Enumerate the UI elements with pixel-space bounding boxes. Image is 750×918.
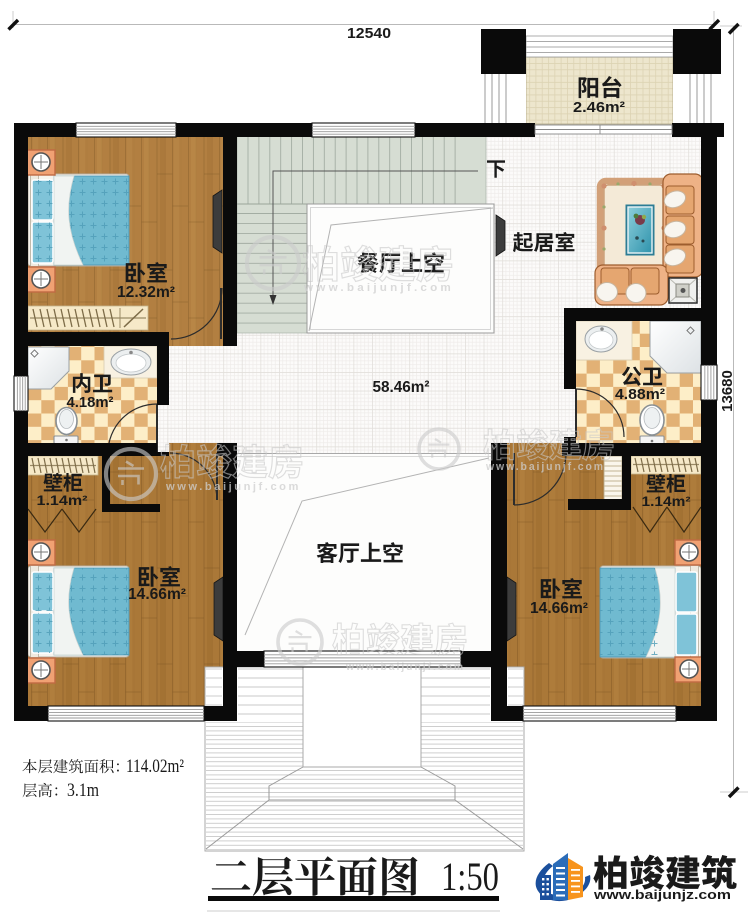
svg-text:3.1m: 3.1m (67, 780, 99, 801)
svg-text:www.baijunjf.com: www.baijunjf.com (485, 461, 605, 473)
svg-text:1.14m²: 1.14m² (37, 492, 88, 508)
svg-text:14.66m²: 14.66m² (530, 600, 588, 617)
svg-text:114.02m²: 114.02m² (126, 756, 184, 777)
svg-text:www.baijunjf.com: www.baijunjf.com (165, 481, 301, 493)
svg-text:2.46m²: 2.46m² (573, 99, 625, 116)
svg-text:www.baijunjf.com: www.baijunjf.com (303, 282, 454, 294)
svg-text:www.baijunjf.com: www.baijunjf.com (345, 661, 465, 673)
svg-text:13680: 13680 (719, 370, 736, 412)
svg-text:1.14m²: 1.14m² (642, 493, 691, 509)
svg-text:14.66m²: 14.66m² (128, 586, 186, 603)
svg-text:1:50: 1:50 (441, 854, 499, 899)
svg-text:4.18m²: 4.18m² (67, 394, 114, 411)
svg-text:58.46m²: 58.46m² (373, 379, 430, 396)
svg-text:12.32m²: 12.32m² (117, 284, 175, 301)
svg-text:4.88m²: 4.88m² (615, 386, 665, 403)
svg-text:www.baijunjz.com: www.baijunjz.com (593, 887, 731, 902)
svg-text:12540: 12540 (347, 25, 391, 42)
